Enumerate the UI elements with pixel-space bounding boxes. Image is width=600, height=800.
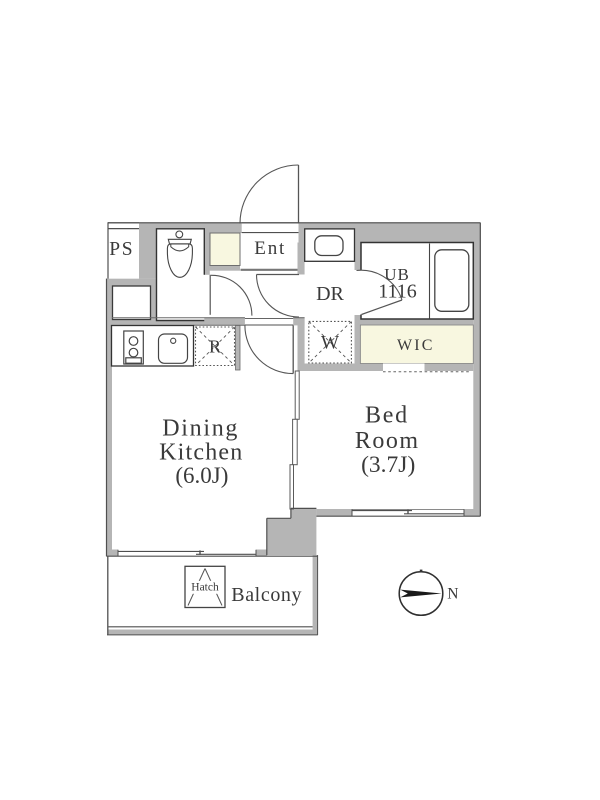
svg-text:1116: 1116 bbox=[378, 281, 417, 303]
svg-text:W: W bbox=[321, 332, 339, 353]
svg-text:(3.7J): (3.7J) bbox=[361, 452, 415, 478]
svg-text:Kitchen: Kitchen bbox=[159, 439, 243, 465]
svg-text:Room: Room bbox=[355, 428, 420, 454]
svg-text:R: R bbox=[209, 337, 221, 357]
svg-text:Balcony: Balcony bbox=[231, 584, 302, 606]
svg-text:N: N bbox=[447, 586, 458, 603]
svg-text:WIC: WIC bbox=[397, 337, 435, 354]
svg-text:PS: PS bbox=[109, 239, 134, 260]
svg-text:(6.0J): (6.0J) bbox=[175, 463, 228, 488]
svg-text:Hatch: Hatch bbox=[191, 582, 219, 594]
svg-text:Ent: Ent bbox=[254, 238, 286, 259]
svg-text:Dining: Dining bbox=[162, 416, 239, 442]
svg-text:DR: DR bbox=[316, 283, 344, 305]
svg-text:Bed: Bed bbox=[365, 402, 409, 428]
